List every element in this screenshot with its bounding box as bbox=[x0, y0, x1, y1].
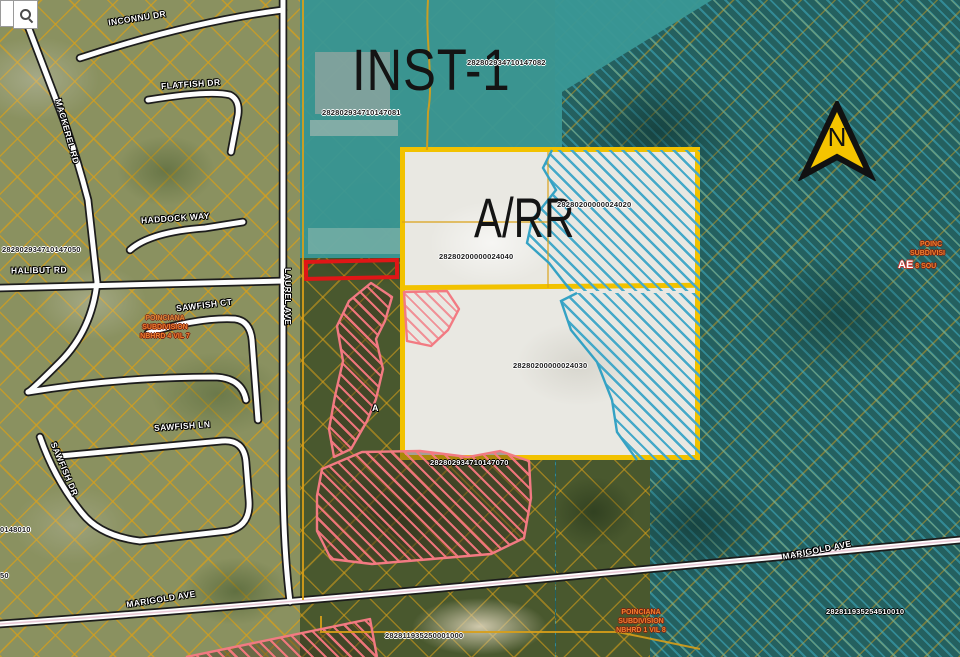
wetland-edges bbox=[186, 283, 531, 657]
street-label-laurel-ave: LAUREL AVE bbox=[284, 268, 293, 325]
street-label-halibut-rd: HALIBUT RD bbox=[11, 266, 67, 275]
search-bar bbox=[0, 0, 38, 29]
subdivision-line: NBHRD 1 VIL 8 bbox=[600, 627, 682, 636]
subdivision-line: POINCIANA bbox=[120, 315, 210, 324]
parcel-id: 282802934710147070 bbox=[430, 459, 509, 467]
subdivision-line: SUBDIVISION bbox=[120, 324, 210, 333]
zone-label-arr: A/RR bbox=[474, 190, 574, 246]
parcel-id-partial: 50 bbox=[0, 572, 9, 580]
zone-label-inst1: INST-1 bbox=[352, 42, 511, 100]
parcel-id: 282802934710147082 bbox=[467, 59, 546, 67]
search-button[interactable] bbox=[13, 0, 38, 29]
north-arrow-letter: N bbox=[828, 122, 847, 152]
subdivision-line: AE 8 SOU bbox=[898, 259, 945, 273]
search-icon bbox=[19, 8, 33, 22]
parcel-id-partial: 0148010 bbox=[0, 526, 31, 534]
north-arrow: N bbox=[798, 101, 876, 181]
selected-parcel-highlight[interactable] bbox=[304, 258, 399, 281]
subdivision-line: POINCIANA bbox=[600, 609, 682, 618]
subdivision-label-nbhrd1: POINCIANA SUBDIVISION NBHRD 1 VIL 8 bbox=[600, 609, 682, 635]
subdivision-line: SUBDIVISION bbox=[600, 618, 682, 627]
search-input[interactable] bbox=[0, 0, 13, 27]
subdivision-label-right-edge: POINC SUBDIVISI AE 8 SOU bbox=[898, 241, 945, 272]
subdivision-line-text: 8 SOU bbox=[915, 263, 936, 270]
parcel-id: 282811935250001000 bbox=[385, 632, 463, 640]
zone-label-a: A bbox=[372, 404, 379, 413]
flood-zone-ae-label: AE bbox=[898, 259, 913, 271]
parcel-id: 282802934710147081 bbox=[322, 109, 401, 117]
map-canvas[interactable]: INST-1 A/RR A 282802934710147081 2828029… bbox=[0, 0, 960, 657]
parcel-id: 282802934710147050 bbox=[2, 246, 81, 254]
parcel-id: 282811935254510010 bbox=[826, 608, 904, 616]
parcel-id: 28280200000024020 bbox=[557, 201, 631, 209]
subdivision-line: NBHRD 4 VIL 7 bbox=[120, 333, 210, 342]
subdivision-label-nbhrd4: POINCIANA SUBDIVISION NBHRD 4 VIL 7 bbox=[120, 315, 210, 341]
parcel-id: 28280200000024030 bbox=[513, 362, 587, 370]
parcel-id: 28280200000024040 bbox=[439, 253, 513, 261]
subdivision-line: SUBDIVISI bbox=[898, 250, 945, 259]
subdivision-line: POINC bbox=[898, 241, 945, 250]
